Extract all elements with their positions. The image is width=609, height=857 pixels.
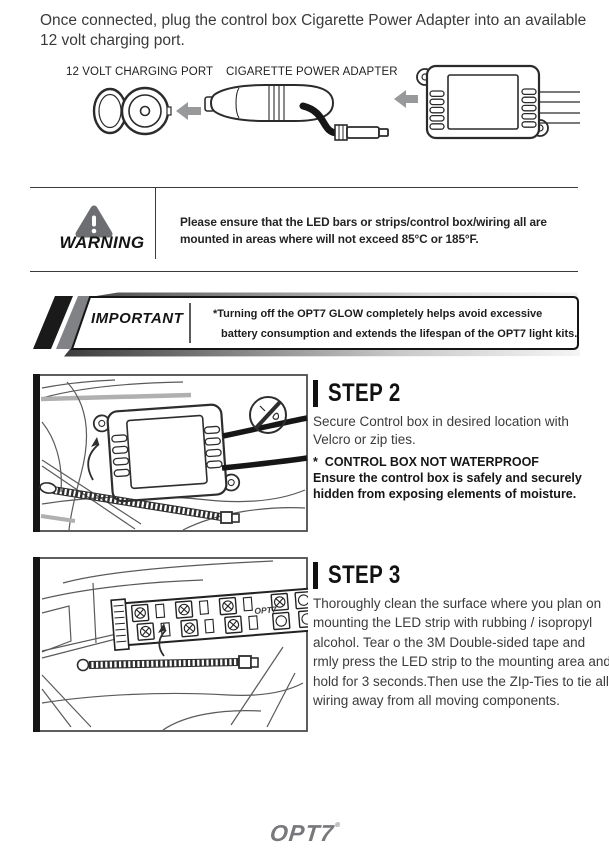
illustration-left-bar — [33, 374, 40, 532]
arrow-left-icon — [176, 102, 201, 120]
important-label: IMPORTANT — [91, 310, 183, 327]
step2-note-body: Ensure the control box is safely and sec… — [313, 470, 595, 502]
intro-paragraph: Once connected, plug the control box Cig… — [40, 11, 588, 51]
opt7-logo: OPT7® — [268, 820, 340, 847]
step3-heading: STEP 3 — [313, 561, 417, 590]
important-text-line2: battery consumption and extends the life… — [213, 324, 563, 344]
arrow-left-icon — [394, 90, 418, 108]
charging-port-illustration — [94, 88, 171, 134]
warning-rule-top — [30, 187, 578, 188]
step2-title: STEP 2 — [328, 379, 401, 408]
step3-title: STEP 3 — [328, 561, 401, 590]
warning-label: WARNING — [46, 233, 158, 253]
illustration-left-bar — [33, 557, 40, 732]
footer: OPT7® — [0, 820, 609, 847]
power-adapter-illustration — [205, 85, 388, 140]
warning-rule-bottom — [30, 271, 578, 272]
strip-brand-text: OPT7 — [254, 604, 278, 616]
step2-heading-bar — [313, 380, 318, 407]
control-box-drawing — [93, 403, 240, 503]
step3-heading-bar — [313, 562, 318, 589]
manual-page: Once connected, plug the control box Cig… — [0, 0, 609, 857]
opt7-logo-text: OPT7 — [269, 820, 336, 846]
warning-text: Please ensure that the LED bars or strip… — [180, 214, 580, 248]
step2-body: Secure Control box in desired location w… — [313, 413, 585, 449]
control-box-illustration — [417, 66, 580, 138]
important-text: *Turning off the OPT7 GLOW completely he… — [213, 304, 563, 345]
banner-bottom-shadow — [64, 349, 580, 357]
step2-illustration — [33, 374, 308, 532]
connection-diagram — [35, 62, 605, 154]
step2-note-title: * CONTROL BOX NOT WATERPROOF — [313, 455, 609, 469]
registered-mark: ® — [334, 822, 340, 829]
step2-heading: STEP 2 — [313, 379, 417, 408]
step3-illustration: OPT7 — [33, 557, 308, 732]
important-text-line1: *Turning off the OPT7 GLOW completely he… — [213, 304, 563, 324]
step3-body: Thoroughly clean the surface where you p… — [313, 594, 609, 711]
